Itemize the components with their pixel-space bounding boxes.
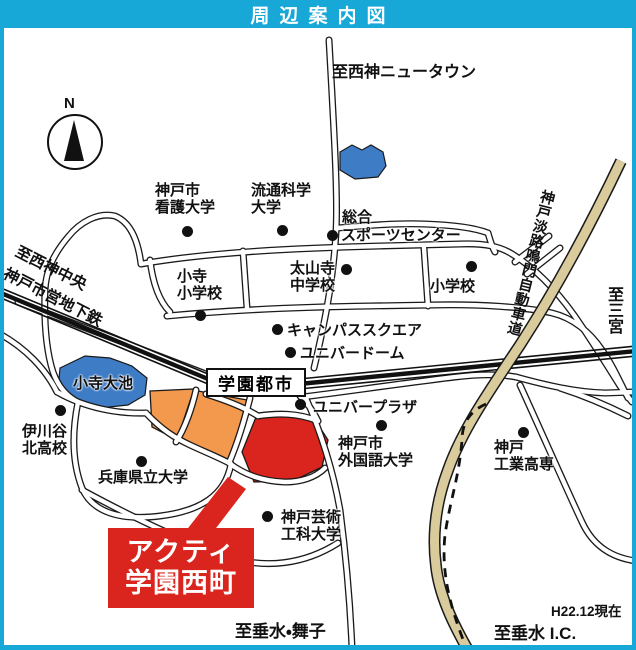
compass-north-label: N: [64, 95, 75, 112]
poi-dot-campus-square: [272, 324, 283, 335]
poi-dot-taisanji-junior-high: [341, 264, 352, 275]
direction-tarumi-maiko: 至垂水・舞子: [235, 617, 326, 642]
label-ikawadani-kita-high: 伊川谷 北高校: [22, 423, 67, 457]
poi-dot-univer-plaza: [295, 399, 306, 410]
poi-dot-ryutsu-kagaku-univ: [277, 225, 288, 236]
poi-dot-kodera-elementary: [195, 310, 206, 321]
direction-nishikobe-newtown: 至西神ニュータウン: [332, 58, 476, 82]
label-kobe-gaidai-univ: 神戸市 外国語大学: [338, 435, 413, 469]
poi-dot-kobe-gaidai-univ: [376, 420, 387, 431]
poi-dot-kobe-design-univ: [262, 511, 273, 522]
compass-needle-icon: [64, 120, 84, 161]
station-name: 学園都市: [218, 370, 294, 395]
label-kobe-nursing-univ: 神戸市 看護大学: [155, 182, 215, 216]
label-campus-square: キャンパススクエア: [287, 322, 422, 339]
station-gakuentoshi: 学園都市: [206, 368, 306, 397]
poi-dot-ikawadani-kita-high: [55, 405, 66, 416]
poi-dot-univer-dome: [285, 347, 296, 358]
label-sports-center-line1: 総合: [342, 209, 372, 226]
compass-icon: [47, 114, 103, 170]
map-screenshot: 周辺案内図 N 至西神ニュータウン 至西神中央 神戸市営地下鉄 至三宮 神戸淡路…: [0, 0, 636, 650]
label-sports-center-line2: スポーツセンター: [341, 227, 461, 244]
label-as-of-date: H22.12現在: [551, 600, 622, 620]
label-taisanji-junior-high: 太山寺 中学校: [290, 260, 335, 294]
frame-right: [632, 28, 636, 650]
pond-top: [340, 145, 386, 179]
label-kobe-kosen: 神戸 工業高専: [494, 439, 554, 473]
direction-sannomiya: 至三宮: [601, 286, 625, 334]
label-univer-plaza: ユニバープラザ: [313, 399, 417, 416]
poi-dot-kobe-nursing-univ: [182, 226, 193, 237]
frame-bottom: [0, 645, 636, 650]
label-hyogo-pref-univ: 兵庫県立大学: [98, 469, 188, 486]
label-kodera-oike-pond: 小寺大池: [73, 375, 133, 392]
frame-left: [0, 28, 4, 650]
poi-dot-sports-center: [327, 230, 338, 241]
label-kobe-design-univ: 神戸芸術 工科大学: [281, 509, 341, 543]
callout-text: アクティ 学園西町: [125, 537, 237, 600]
label-kodera-elementary: 小寺 小学校: [177, 268, 222, 302]
label-elementary-school: 小学校: [430, 278, 475, 295]
poi-dot-hyogo-pref-univ: [136, 456, 147, 467]
label-univer-dome: ユニバードーム: [300, 345, 405, 362]
poi-dot-elementary-school: [466, 261, 477, 272]
label-ryutsu-kagaku-univ: 流通科学 大学: [251, 182, 311, 216]
poi-dot-kobe-kosen: [518, 427, 529, 438]
direction-tarumi-ic: 至垂水 I.C.: [494, 619, 576, 644]
callout-acty-gakuen-nishimachi: アクティ 学園西町: [108, 528, 254, 608]
